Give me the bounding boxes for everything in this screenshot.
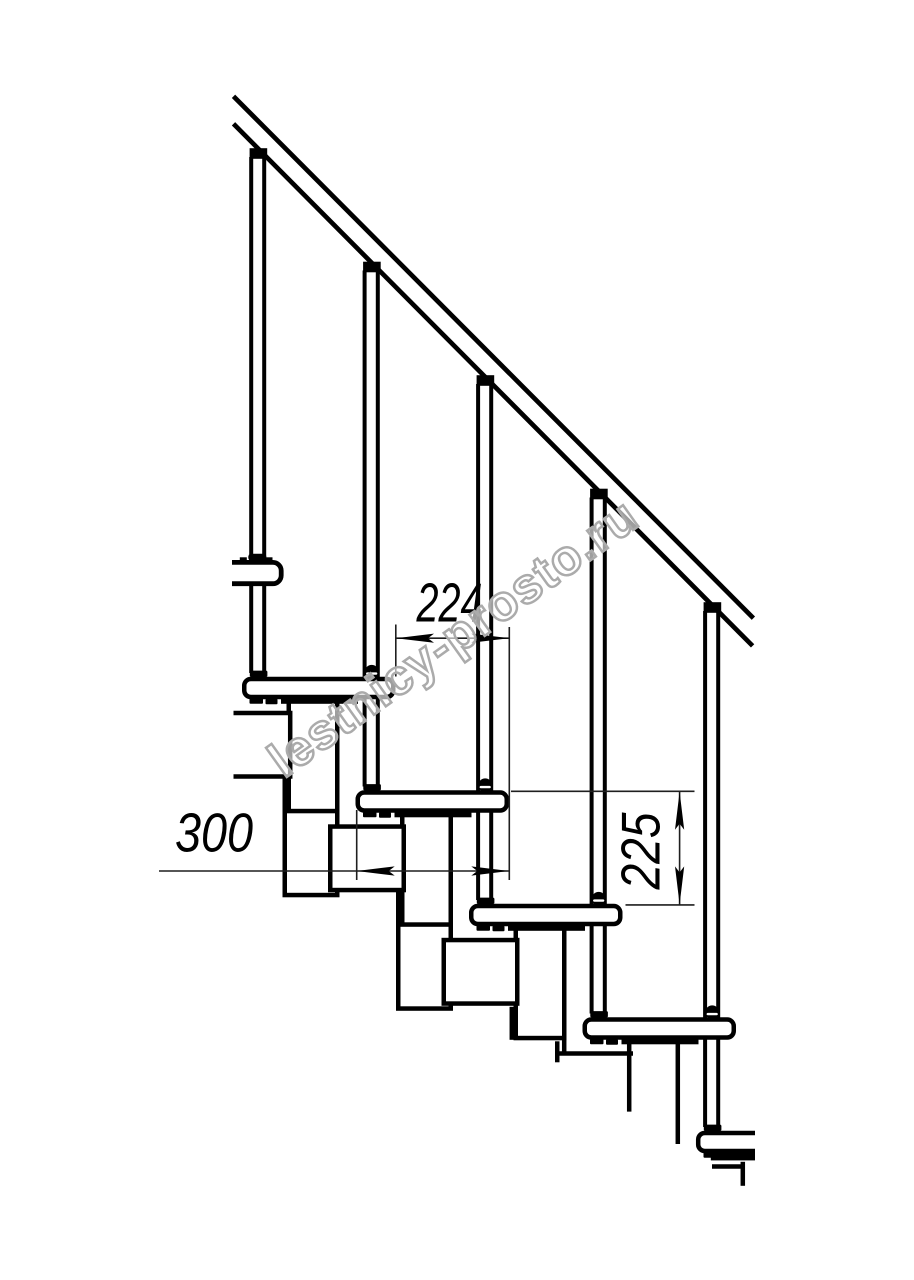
svg-text:225: 225 <box>610 812 672 890</box>
svg-text:300: 300 <box>175 802 253 864</box>
